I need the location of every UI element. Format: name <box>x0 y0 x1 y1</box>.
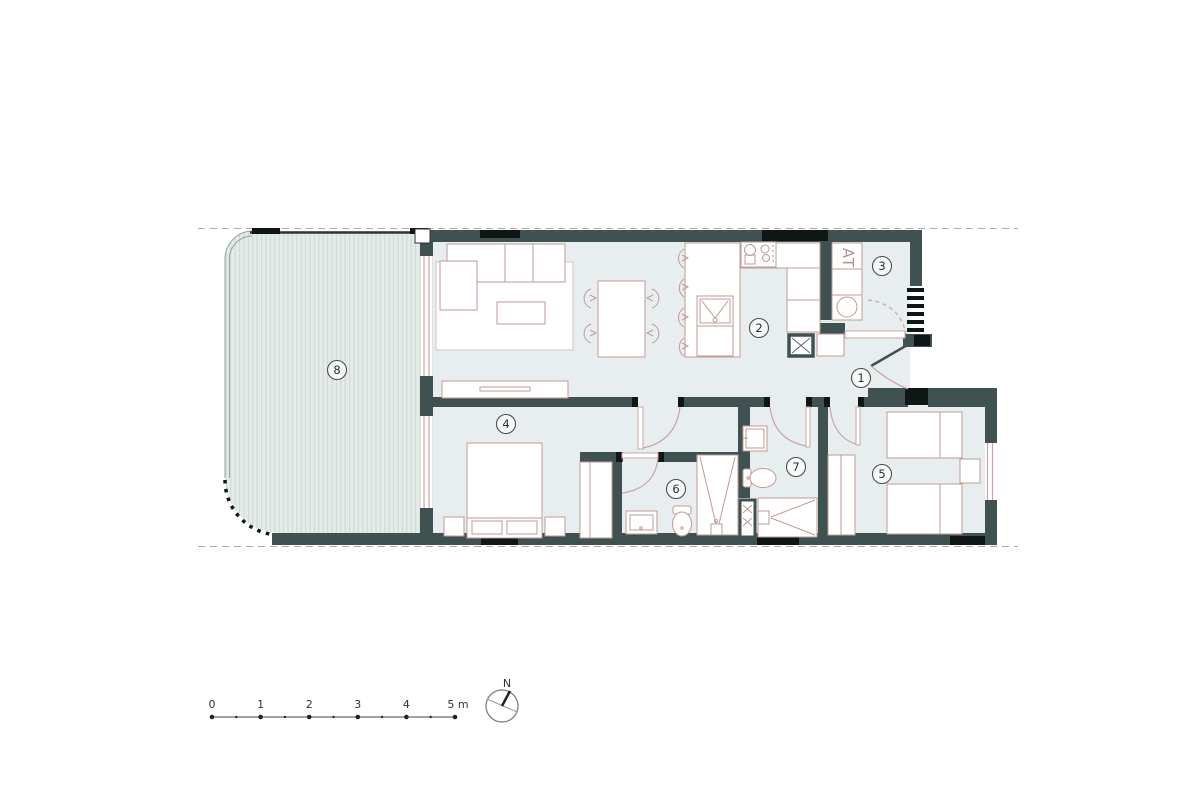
room-label-3: 3 <box>873 257 892 276</box>
room-label-1: 1 <box>852 369 871 388</box>
utility-label: AT <box>839 248 857 268</box>
shaft-7 <box>740 500 755 537</box>
single-bed-bottom <box>887 484 962 534</box>
north-compass: N <box>486 677 518 722</box>
scale-tick-0: 0 <box>209 698 216 711</box>
svg-text:8: 8 <box>333 363 340 377</box>
north-needle <box>502 691 510 706</box>
sink-7 <box>743 426 767 451</box>
living-room-window <box>421 256 432 376</box>
room-label-2: 2 <box>750 319 769 338</box>
coffee-table <box>497 302 545 324</box>
floor-plan-canvas: AT <box>0 0 1200 800</box>
wardrobe-5 <box>828 455 855 535</box>
bedroom4-window <box>421 416 432 508</box>
nightstand-left <box>444 517 464 536</box>
room-label-5: 5 <box>873 465 892 484</box>
room-label-6: 6 <box>667 480 686 499</box>
terrace <box>225 228 433 535</box>
scale-tick-5: 5 m <box>447 698 468 711</box>
svg-text:7: 7 <box>792 460 799 474</box>
hob <box>741 242 776 267</box>
toilet-6 <box>673 506 692 536</box>
hall-cabinet <box>817 334 844 356</box>
kitchen-sink <box>697 296 733 356</box>
room-label-4: 4 <box>497 415 516 434</box>
utility-door-leaf <box>845 331 905 338</box>
svg-text:4: 4 <box>502 417 509 431</box>
svg-text:2: 2 <box>755 321 762 335</box>
scale-tick-1: 1 <box>257 698 264 711</box>
toilet-7 <box>743 469 776 488</box>
wardrobe-4 <box>580 462 612 538</box>
double-bed <box>467 443 542 538</box>
sink-6 <box>626 511 657 534</box>
scale-tick-3: 3 <box>354 698 361 711</box>
shower-7 <box>758 498 817 537</box>
svg-text:6: 6 <box>672 482 679 496</box>
bedroom5-window <box>986 443 996 500</box>
wall-junction-box <box>415 229 430 243</box>
north-label: N <box>503 677 511 690</box>
utility-shaft <box>789 335 813 356</box>
tv-sideboard <box>442 381 568 398</box>
utility-cabinet-mid <box>832 269 862 295</box>
single-bed-top <box>887 412 962 458</box>
shower-6 <box>697 455 738 535</box>
washing-machine <box>832 295 862 320</box>
floor-plan-drawing: AT <box>0 0 1200 800</box>
svg-text:5: 5 <box>878 467 885 481</box>
room-label-8: 8 <box>328 361 347 380</box>
svg-text:3: 3 <box>878 259 885 273</box>
nightstand-5 <box>960 459 980 483</box>
scale-tick-2: 2 <box>306 698 313 711</box>
scale-tick-4: 4 <box>403 698 410 711</box>
room-label-7: 7 <box>787 458 806 477</box>
kitchen-cabinets <box>787 268 820 332</box>
scale-bar: 0 1 2 3 4 5 m <box>209 698 469 719</box>
nightstand-right <box>545 517 565 536</box>
svg-text:1: 1 <box>857 371 864 385</box>
